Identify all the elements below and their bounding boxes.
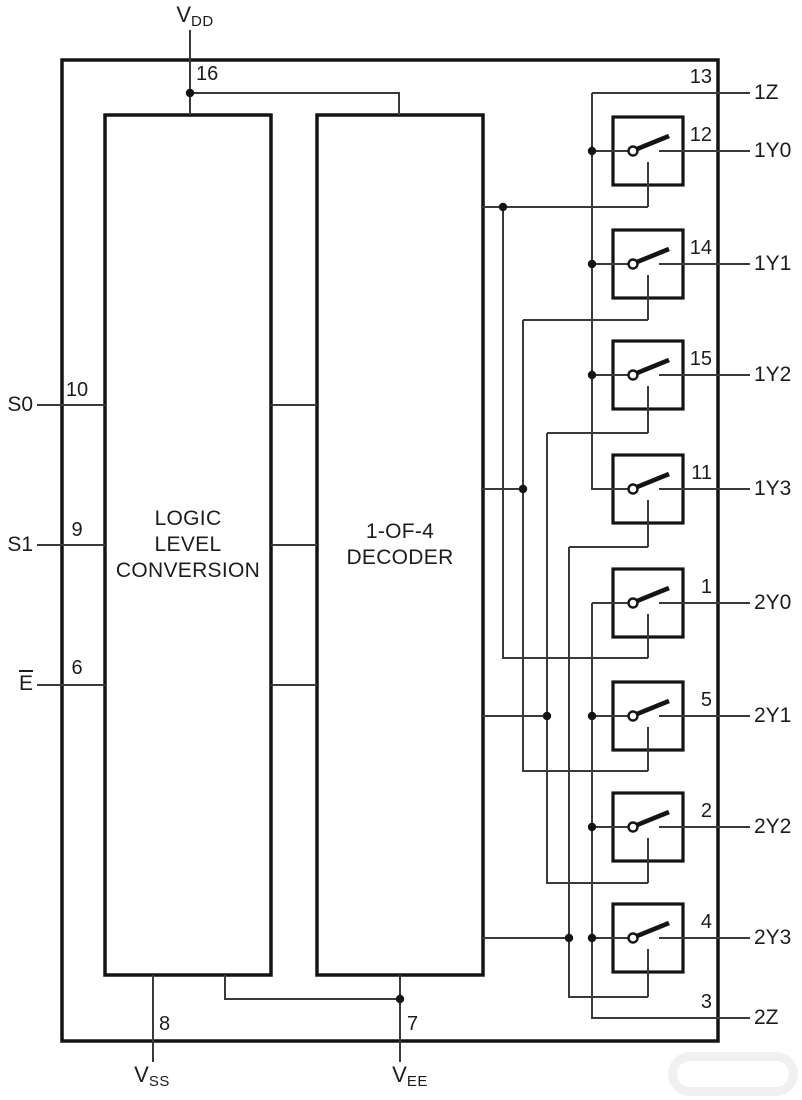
output-label-1y0: 1Y0: [754, 139, 791, 163]
output-label-1z: 1Z: [754, 81, 779, 105]
pin-number-12: 12: [632, 124, 712, 146]
functional-diagram: VDD 16 VSS 8 VEE 7 S0 10 S1 9 E 6 LOGIC …: [0, 0, 802, 1100]
pin-number-5: 5: [632, 689, 712, 711]
decoder-caption-line2: DECODER: [346, 545, 453, 571]
output-label-1y1: 1Y1: [754, 252, 791, 276]
pin-number-15: 15: [632, 348, 712, 370]
logic-level-conversion-caption: LOGIC LEVEL CONVERSION: [105, 115, 271, 975]
pin-number-6: 6: [62, 657, 92, 679]
logic-caption-line3: CONVERSION: [116, 558, 260, 584]
vdd-wire: [190, 30, 399, 115]
output-label-2y1: 2Y1: [754, 704, 791, 728]
output-label-2y0: 2Y0: [754, 591, 791, 615]
pin-number-3: 3: [632, 991, 712, 1013]
output-label-2y2: 2Y2: [754, 815, 791, 839]
input-label-enable: E: [0, 672, 33, 696]
vee-label: VEE: [375, 1063, 445, 1094]
decoder-caption: 1-OF-4 DECODER: [317, 115, 483, 975]
decoder-caption-line1: 1-OF-4: [366, 519, 434, 545]
pin-number-2: 2: [632, 800, 712, 822]
vdd-symbol: V: [176, 2, 191, 27]
input-label-s0: S0: [0, 393, 33, 417]
vss-label: VSS: [117, 1063, 187, 1094]
watermark-shape: [668, 1052, 798, 1096]
pin-number-8: 8: [159, 1013, 170, 1035]
pin-number-14: 14: [632, 237, 712, 259]
pin-number-4: 4: [632, 911, 712, 933]
vss-subscript: SS: [149, 1073, 170, 1090]
vdd-label: VDD: [160, 3, 230, 34]
enable-overbar-text: E: [19, 672, 33, 695]
output-label-2z: 2Z: [754, 1006, 779, 1030]
pin-number-16: 16: [196, 63, 218, 85]
pin-number-9: 9: [62, 519, 92, 541]
input-label-s1: S1: [0, 533, 33, 557]
pin-number-7: 7: [407, 1013, 418, 1035]
vee-wire: [225, 975, 400, 1062]
pin-number-13: 13: [632, 66, 712, 88]
logic-caption-line1: LOGIC: [155, 506, 222, 532]
vee-subscript: EE: [407, 1073, 428, 1090]
output-label-2y3: 2Y3: [754, 926, 791, 950]
logic-caption-line2: LEVEL: [155, 532, 222, 558]
vdd-subscript: DD: [191, 13, 214, 30]
output-label-1y3: 1Y3: [754, 477, 791, 501]
vee-symbol: V: [392, 1062, 407, 1087]
output-label-1y2: 1Y2: [754, 363, 791, 387]
vss-symbol: V: [134, 1062, 149, 1087]
pin-number-11: 11: [632, 462, 712, 484]
pin-number-10: 10: [62, 379, 92, 401]
pin-number-1: 1: [632, 576, 712, 598]
